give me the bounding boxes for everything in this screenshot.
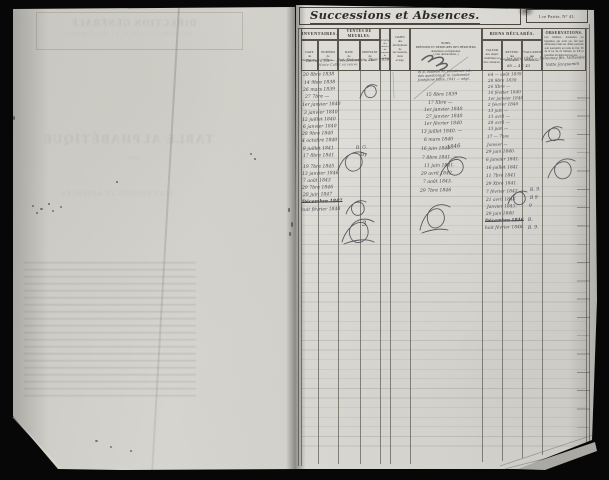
handwritten-entry: 19 7bre 1845 [303,164,334,170]
handwritten-entry: B. 9. [530,187,541,193]
handwritten-entry: 6 mars 1840 [424,137,453,143]
handwritten-entry: 29 juin 1840. [486,149,515,155]
handwritten-entry: 13 avril — [488,113,510,119]
ink-speck [130,450,132,452]
handwritten-entry: 29 7bre 1846 [302,185,333,191]
handwritten-entry: huit février 1848 [301,207,341,213]
bleedthrough-text: TABLE ALPHABÉTIQUE [42,132,214,147]
handwritten-entry: 21 avril 1843 [486,197,516,203]
handwritten-entry: 3 janvier 1840 [304,110,338,116]
handwritten-entry: 3 [362,220,367,228]
handwritten-entry: 7 février 1842 [486,189,518,195]
handwritten-entry: 13 janvier 1846 [302,171,339,177]
ink-speck [36,212,38,214]
handwritten-entry: B 9 [530,195,538,201]
handwritten-entry: 7 août 1843. [423,179,452,185]
handwritten-entry: 4 octobre 1840 [302,138,337,144]
ink-speck [95,440,98,442]
ink-speck [60,206,62,208]
bleedthrough-paragraph [24,262,196,402]
column-header-dates-declarations: DATES des déclarations de successions, d… [390,28,410,71]
handwritten-entry: 28 juin 1847 [303,192,332,198]
corner-label: 1.re Partie, N° 41. [526,9,588,23]
handwritten-entry: 15 8bre 1839 [426,92,457,98]
handwritten-entry: 28 avril — [488,119,510,125]
handwritten-entry: Janvier — [487,141,508,147]
edge-tick-marks [577,80,590,444]
handwritten-entry: 29 Xbre 1841. [486,181,518,187]
column-header-ventes-meubles: VENTES DE MEUBLES. [338,28,380,40]
handwritten-entry: 12 juillet 1840 [302,117,336,123]
scanned-register-spread: DIRECTION GÉNÉRALEDE L'ENREGISTREMENT ET… [0,0,609,480]
handwritten-entry: 26 mars 1839 [303,87,335,93]
binding-gutter-shadow [286,5,306,470]
handwritten-entry: 17 Xbre — [428,100,453,106]
column-header-inventaires: INVENTAIRES. [301,28,338,40]
ink-speck [116,181,118,183]
table-top-border [298,28,589,29]
handwritten-entry: 10 février 1840 [488,89,521,95]
handwritten-entry: 1er janvier 1840 [424,107,463,113]
ink-speck [110,446,112,448]
handwritten-entry: 29 7bre 1846 [420,188,451,194]
handwritten-entry: 68 — 4 f. 43 [507,63,530,68]
ink-smudge [517,5,535,17]
handwritten-entry: 17 8bre 1841 [303,153,334,159]
handwritten-entry: 27 janvier 1840 [426,114,463,120]
handwritten-entry: huit février 1848. [485,225,524,231]
handwritten-entry: 1er janvier 1840 [302,102,341,108]
handwritten-entry: 6 janvier 1840 [303,124,337,130]
handwritten-entry: 14 9bre 1838 [304,80,335,86]
handwritten-entry: 13 juin — [488,107,508,113]
handwritten-entry: 11 juin 1841. [424,163,455,169]
handwritten-entry: B. [528,218,533,223]
handwritten-entry: Marie Collet sa veuve [318,62,358,67]
handwritten-entry: 7 août 1843 [303,178,331,184]
column-header-biens-declares: BIENS DÉCLARÉS. [482,28,542,40]
handwritten-entry: 20 8bre 1838 [303,72,334,78]
handwritten-entry: Décembre 1847 [302,199,343,205]
bleedthrough-text: DE L'ENREGISTREMENT ET DES DOMAINES [62,32,192,37]
handwritten-entry: 27 7bre — [305,94,329,100]
column-header-sommier: NUMÉRO des articles du sommier de survei… [380,28,390,71]
column-header-noms: NOMS, PRÉNOMS ET DEMEURES DES HÉRITIERS,… [410,28,482,71]
column-header-montant-vente: MONTANT de la vente. [360,40,380,71]
handwritten-entry: 1er février 1840 [424,121,462,127]
handwritten-entry: 11 7bre 1841 [486,173,516,179]
handwritten-entry: 28 9bre 1839 [488,77,517,83]
handwritten-entry: Décembre 1846 [485,218,524,224]
ink-speck [254,158,256,160]
handwritten-entry: 29 juin 1840 [486,211,514,217]
handwritten-entry: 64 — août 1839 [488,71,522,77]
ink-speck [40,208,43,210]
handwritten-entry: 13 juillet 1840. — [421,129,462,135]
handwritten-entry: 1er janvier 1840 [488,95,523,101]
ink-speck [52,210,54,212]
ink-speck [13,116,15,120]
ink-speck [48,203,50,205]
handwritten-entry: 29 avril 1842 [421,171,452,177]
bleedthrough-text: SUCCESSIONS ET ABSENCES. [58,190,173,198]
handwritten-entry: B. 9. [528,225,539,231]
handwritten-entry: By [361,152,367,158]
handwritten-entry: 16 juillet 1841 [486,165,518,171]
handwritten-entry: 2 février 1840 [488,101,518,107]
handwritten-entry: 6 janvier 1841. [486,157,520,163]
handwritten-entry: 13 juin — [488,125,508,131]
handwritten-entry: 17 — 7bre [487,133,509,139]
ink-speck [250,153,252,155]
register-title-box: Successions et Absences. [299,7,521,25]
register-title: Successions et Absences. [310,8,480,24]
handwritten-entry: Janvier 1843. [487,204,517,210]
handwritten-entry: 8 juillet 1841 [303,146,334,152]
bleedthrough-text: DES [128,156,139,162]
ink-speck [32,205,34,207]
handwritten-entry: 9 [529,204,532,209]
handwritten-entry: B. G. [356,145,368,151]
handwritten-entry: 7 8bre 1841. — [422,155,458,161]
handwritten-entry: 28 9bre 1840 [302,131,333,137]
handwritten-entry: 26 Xbre — [488,83,510,89]
